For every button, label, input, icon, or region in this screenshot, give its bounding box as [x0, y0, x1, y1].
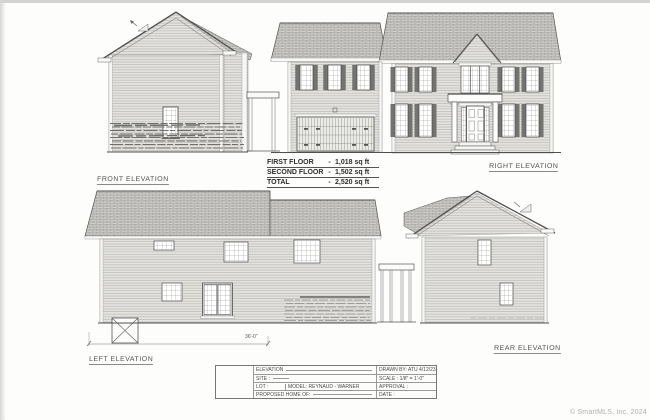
- title-block-date-cell: DATE :: [376, 390, 436, 398]
- sidelight: [462, 108, 467, 143]
- fill-in-line: [313, 393, 372, 395]
- fill-in-line: [273, 377, 289, 379]
- title-block-lot-model-cell: LOT : MODEL: REYNAUD - WARNER: [253, 382, 376, 390]
- area-summary: FIRST FLOOR - 1,018 sq ft SECOND FLOOR -…: [267, 158, 379, 188]
- title-block: ELEVATION DRAWN BY: ATU 4/12/23 SITE : S…: [215, 365, 437, 399]
- porch: [247, 92, 280, 151]
- bulkhead: [112, 318, 138, 343]
- front-elevation-label: FRONT ELEVATION: [97, 176, 169, 185]
- title-block-blank-cell: [216, 366, 253, 398]
- area-value: 1,018 sq ft: [335, 159, 379, 167]
- corner-trim: [550, 64, 553, 154]
- dimension-annotation: 36'-0": [245, 334, 258, 340]
- rear-elevation-label: REAR ELEVATION: [494, 345, 561, 354]
- eave-return: [406, 234, 418, 238]
- eave-return: [223, 51, 236, 55]
- scale-value: SCALE : 1/8" = 1'-0": [379, 376, 424, 382]
- site-label: SITE :: [256, 376, 270, 382]
- title-block-proposed-home-cell: PROPOSED HOME OF:: [253, 390, 376, 398]
- lower-windows: [162, 283, 182, 301]
- area-sep: -: [324, 169, 335, 177]
- area-value: 2,520 sq ft: [335, 179, 379, 187]
- corner-trim: [422, 237, 425, 323]
- lot-label: LOT :: [256, 384, 282, 390]
- rear-porch: [377, 264, 416, 322]
- title-block-elevation-cell: ELEVATION: [253, 366, 376, 374]
- corner-trim: [379, 62, 382, 152]
- smartmls-watermark: © SmartMLS, Inc. 2024: [570, 409, 647, 416]
- area-label: SECOND FLOOR: [267, 169, 324, 177]
- corner-trim: [100, 239, 103, 323]
- title-block-scale-cell: SCALE : 1/8" = 1'-0": [376, 374, 436, 382]
- approval-label: APPROVAL :: [379, 384, 408, 390]
- roof-pitch-marker: [514, 202, 531, 212]
- title-block-drawn-by-cell: DRAWN BY: ATU 4/12/23: [376, 366, 436, 374]
- roof-section-low: [270, 200, 381, 236]
- rear-elevation-drawing: [377, 191, 555, 323]
- corner-trim: [544, 237, 547, 323]
- area-row-first-floor: FIRST FLOOR - 1,018 sq ft: [267, 158, 379, 168]
- fascia: [85, 236, 381, 239]
- title-block-site-cell: SITE :: [253, 374, 376, 382]
- garage-windows: [296, 65, 375, 90]
- french-doors: [201, 283, 235, 319]
- left-elevation-drawing: [85, 191, 381, 346]
- corner-trim: [288, 62, 291, 152]
- eave-return: [98, 58, 111, 62]
- left-elevation-label: LEFT ELEVATION: [89, 356, 153, 365]
- drawn-by-value: DRAWN BY: ATU 4/12/23: [379, 367, 436, 373]
- right-elevation-label: RIGHT ELEVATION: [489, 163, 559, 172]
- sidelight: [485, 108, 490, 143]
- title-block-approval-cell: APPROVAL :: [376, 382, 436, 390]
- blueprint-sheet: FRONT ELEVATION RIGHT ELEVATION LEFT ELE…: [0, 0, 650, 420]
- roof-section-tall: [85, 191, 270, 236]
- garage-door: [295, 108, 376, 151]
- area-sep: -: [324, 179, 335, 187]
- area-label: TOTAL: [267, 179, 324, 187]
- proposed-home-label: PROPOSED HOME OF:: [256, 392, 310, 398]
- title-block-elevation-label: ELEVATION: [256, 367, 283, 373]
- area-row-total: TOTAL - 2,520 sq ft: [267, 178, 379, 188]
- area-row-second-floor: SECOND FLOOR - 1,502 sq ft: [267, 168, 379, 178]
- garage-roof: [271, 23, 387, 60]
- roof-pitch-marker: [130, 20, 148, 31]
- right-elevation-drawing: [271, 13, 561, 154]
- front-elevation-drawing: [98, 12, 280, 152]
- fill-in-line: [286, 369, 372, 371]
- garage-fascia: [271, 58, 388, 62]
- model-value: MODEL: REYNAUD - WARNER: [285, 384, 360, 390]
- area-sep: -: [324, 159, 335, 167]
- date-label: DATE :: [379, 392, 395, 398]
- corner-trim: [372, 239, 375, 323]
- eave-return: [541, 229, 554, 233]
- area-value: 1,502 sq ft: [335, 169, 379, 177]
- area-label: FIRST FLOOR: [267, 159, 324, 167]
